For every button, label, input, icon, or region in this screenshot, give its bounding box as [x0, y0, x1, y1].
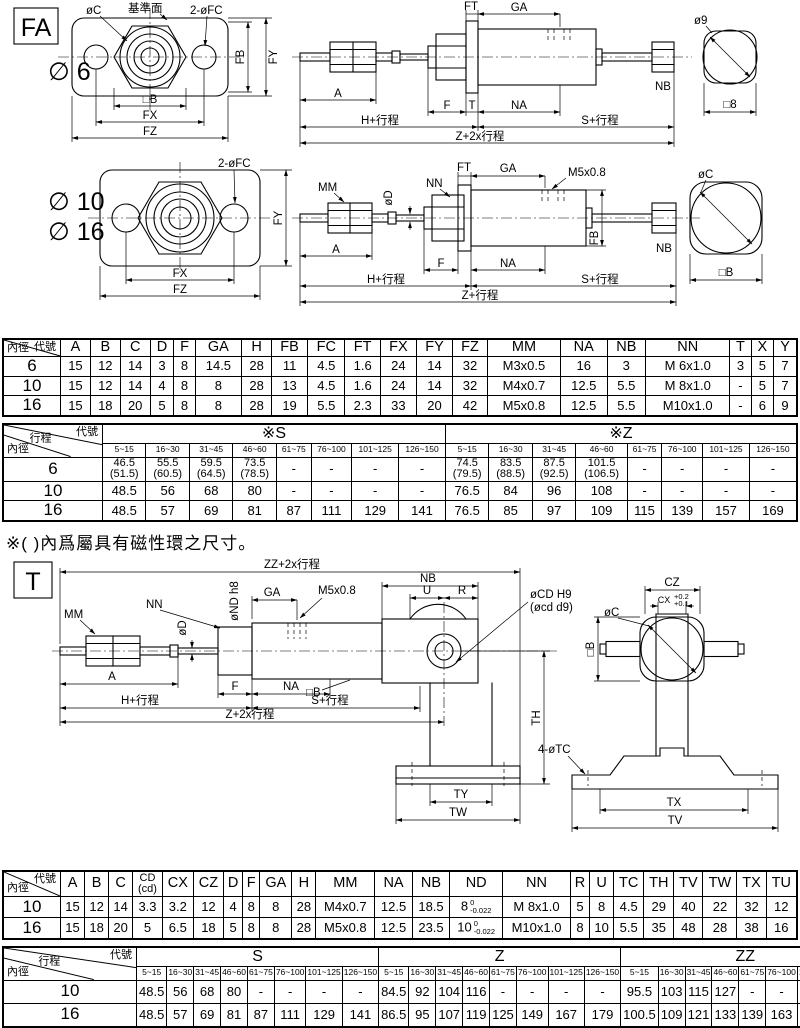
sqb-label: □B — [143, 94, 158, 106]
bore16-label: ∅ 16 — [48, 218, 105, 246]
ocd-label: øCD H9 — [530, 589, 572, 601]
value-cell: 12.5 — [561, 376, 608, 396]
nb-label-t: NB — [420, 573, 436, 585]
value-cell: 85 — [489, 501, 532, 521]
col-header: R — [570, 871, 589, 897]
col-header: MM — [316, 871, 375, 897]
value-cell: M10x1.0 — [646, 396, 730, 416]
range-header: 61~75 — [276, 443, 311, 457]
range-header: 126~150 — [749, 443, 797, 457]
value-cell: M4x0.7 — [316, 897, 375, 918]
value-cell: 14 — [416, 356, 452, 376]
m5-label-t: M5x0.8 — [318, 585, 356, 597]
t-stroke-table: 代號行程內徑SZZZ5~1516~3031~4546~6061~7576~100… — [2, 946, 800, 1028]
col-header: FB — [272, 339, 308, 356]
ft-label: FT — [464, 1, 478, 13]
col-header: FT — [345, 339, 380, 356]
fy-label-2: FY — [273, 210, 285, 225]
value-cell: - — [703, 457, 750, 481]
value-cell: 104 — [436, 980, 463, 1003]
fc-label: 2-øFC — [190, 5, 223, 17]
fa-drawing: FA ∅ 6 øC 基準面 2-øFC FB FY □B FX FZ — [0, 0, 800, 332]
value-cell: 32 — [453, 376, 488, 396]
ga-label-2: GA — [500, 163, 517, 175]
value-cell: 119 — [463, 1003, 490, 1027]
value-cell: 48.5 — [103, 501, 146, 521]
corner-label: 代號 — [110, 950, 132, 961]
fa-tag-label: FA — [21, 14, 52, 42]
value-cell: 108 — [576, 481, 627, 501]
value-cell: 5 — [133, 918, 163, 940]
datum-label: 基準面 — [128, 1, 163, 15]
tc4-label: 4-øTC — [538, 744, 571, 756]
zz-stroke-label: ZZ+2x行程 — [264, 558, 320, 571]
corner-label: 代號 — [34, 342, 56, 353]
value-cell: 12.5 — [375, 918, 412, 940]
value-cell: 1.6 — [345, 356, 380, 376]
value-cell: 15 — [61, 918, 85, 940]
corner-label: 內徑 — [7, 444, 29, 455]
tol-tb: -0.022 — [474, 928, 495, 936]
value-cell: 38 — [737, 918, 766, 940]
col-header: D — [150, 339, 174, 356]
z-stroke-label: Z+行程 — [462, 289, 499, 302]
bore-cell: 6 — [3, 356, 61, 376]
value-cell: - — [766, 980, 798, 1003]
h-stroke-label-t: H+行程 — [121, 694, 160, 707]
col-header: ND — [450, 871, 503, 897]
value-cell: 12.5 — [375, 897, 412, 918]
corner-label: 代號 — [76, 427, 98, 438]
value-cell: 111 — [274, 1003, 306, 1027]
value-cell: 8 — [590, 897, 614, 918]
value-cell: 139 — [662, 501, 703, 521]
value-cell: 76.5 — [445, 501, 488, 521]
bore-cell: 10 — [3, 897, 61, 918]
value-cell: 4.5 — [308, 356, 345, 376]
value-cell: 8 — [174, 376, 195, 396]
value-cell: 20 — [416, 396, 452, 416]
value-cell: 8 — [260, 918, 292, 940]
table-row: 61512143814.528114.51.6241432M3x0.5163M … — [3, 356, 797, 376]
value-cell: 149 — [516, 1003, 548, 1027]
value-cell: 69 — [189, 501, 232, 521]
table-row: 101512143.33.21248828M4x0.712.518.580-0.… — [3, 897, 797, 918]
m5-label: M5x0.8 — [568, 167, 606, 179]
value-cell: 95 — [409, 1003, 436, 1027]
col-header: FZ — [453, 339, 488, 356]
value-cell: 5 — [223, 918, 242, 940]
tw-label: TW — [449, 807, 467, 819]
fc-label-2: 2-øFC — [218, 158, 251, 170]
value-cell: 109 — [658, 1003, 685, 1027]
range-header: 46~60 — [221, 966, 248, 980]
value-cell: M10x1.0 — [503, 918, 571, 940]
value-cell: 101.5 (106.5) — [576, 457, 627, 481]
value-cell: 56 — [146, 481, 189, 501]
range-header: 5~15 — [445, 443, 488, 457]
value-cell: - — [247, 980, 274, 1003]
value-cell: 16 — [561, 356, 608, 376]
range-header: 16~30 — [489, 443, 532, 457]
value-cell: 81 — [221, 1003, 248, 1027]
value-cell: 3 — [150, 356, 174, 376]
value-cell: M 8x1.0 — [503, 897, 571, 918]
value-cell: - — [342, 980, 378, 1003]
fb-label-2: FB — [589, 230, 601, 245]
value-cell: M 6x1.0 — [646, 356, 730, 376]
value-cell: 86.5 — [379, 1003, 409, 1027]
value-cell: - — [306, 980, 342, 1003]
value-cell: 141 — [342, 1003, 378, 1027]
col-header: FX — [380, 339, 416, 356]
value-cell: 28 — [703, 918, 737, 940]
range-header: 61~75 — [739, 966, 766, 980]
value-cell: - — [352, 457, 399, 481]
value-cell: 20 — [120, 396, 150, 416]
value-cell: 48.5 — [137, 1003, 167, 1027]
nn-label: NN — [426, 178, 443, 190]
group-header: ※Z — [445, 424, 797, 443]
col-header: NB — [607, 339, 646, 356]
value-cell: 6.5 — [162, 918, 193, 940]
value-cell: 8 — [195, 376, 242, 396]
range-header: 76~100 — [311, 443, 352, 457]
value-cell: 87 — [276, 501, 311, 521]
group-header: S — [137, 947, 379, 966]
sqb-label-t2: □B — [585, 641, 597, 656]
f-label: F — [443, 100, 450, 112]
range-header: 61~75 — [490, 966, 517, 980]
tol-main: 10 — [457, 920, 471, 935]
value-cell: 4.5 — [614, 897, 644, 918]
range-header: 31~45 — [685, 966, 712, 980]
col-header: F — [174, 339, 195, 356]
value-cell: 103 — [658, 980, 685, 1003]
corner-cell: 代號內徑 — [3, 871, 61, 897]
value-cell: 24 — [380, 356, 416, 376]
table-row: 1615182058828195.52.3332042M5x0.812.55.5… — [3, 396, 797, 416]
value-cell: 57 — [167, 1003, 194, 1027]
col-header: A — [61, 871, 85, 897]
value-cell: - — [627, 481, 662, 501]
value-cell: 115 — [685, 980, 712, 1003]
value-cell: 14 — [109, 897, 133, 918]
group-header: ※S — [103, 424, 446, 443]
col-header: TU — [766, 871, 797, 897]
range-header: 5~15 — [379, 966, 409, 980]
value-cell: - — [703, 481, 750, 501]
value-cell: 48.5 — [103, 481, 146, 501]
value-cell: 48.5 — [137, 980, 167, 1003]
value-cell: 14 — [120, 376, 150, 396]
value-cell: 3 — [730, 356, 751, 376]
value-cell: 14 — [416, 376, 452, 396]
col-header: NA — [375, 871, 412, 897]
value-cell: - — [749, 481, 797, 501]
col-header: A — [61, 339, 91, 356]
range-header: 76~100 — [766, 966, 798, 980]
range-header: 5~15 — [137, 966, 167, 980]
value-cell: 40 — [674, 897, 703, 918]
value-cell: 28 — [292, 918, 316, 940]
value-cell: 18 — [90, 396, 120, 416]
value-cell: 107 — [436, 1003, 463, 1027]
value-cell: 59.5 (64.5) — [189, 457, 232, 481]
col-header: D — [223, 871, 242, 897]
value-cell: 179 — [584, 1003, 620, 1027]
value-cell: 18 — [85, 918, 109, 940]
value-cell: 4 — [150, 376, 174, 396]
value-cell: 74.5 (79.5) — [445, 457, 488, 481]
value-cell: 129 — [306, 1003, 342, 1027]
value-cell: M3x0.5 — [487, 356, 560, 376]
value-cell: 7 — [774, 376, 797, 396]
value-cell: 18.5 — [412, 897, 449, 918]
value-cell: M5x0.8 — [316, 918, 375, 940]
tol-main: 8 — [461, 899, 468, 914]
value-cell: 84 — [489, 481, 532, 501]
value-cell: - — [352, 481, 399, 501]
value-cell: 68 — [194, 980, 221, 1003]
value-cell: 111 — [311, 501, 352, 521]
value-cell: 3.2 — [162, 897, 193, 918]
a-label-t: A — [108, 671, 116, 683]
value-cell: 3.3 — [133, 897, 163, 918]
value-cell: 139 — [739, 1003, 766, 1027]
range-header: 31~45 — [532, 443, 575, 457]
f-label-2: F — [437, 258, 444, 270]
range-header: 61~75 — [627, 443, 662, 457]
value-cell: - — [627, 457, 662, 481]
value-cell: 15 — [61, 356, 91, 376]
h-stroke-label-2: H+行程 — [367, 273, 406, 286]
bore10-label: ∅ 10 — [48, 188, 105, 216]
value-cell: 5 — [751, 356, 774, 376]
col-header: Y — [774, 339, 797, 356]
value-cell: 8 — [195, 396, 242, 416]
r-label: R — [458, 585, 466, 597]
value-cell: - — [399, 457, 446, 481]
col-header: MM — [487, 339, 560, 356]
bore-cell: 10 — [3, 481, 103, 501]
value-cell: 1.6 — [345, 376, 380, 396]
value-cell: 81 — [233, 501, 276, 521]
value-cell: - — [490, 980, 517, 1003]
bore-cell: 16 — [3, 501, 103, 521]
value-cell: 42 — [453, 396, 488, 416]
value-cell: 6 — [751, 396, 774, 416]
cx-tol-bot: +0.1 — [674, 599, 689, 608]
group-header: Z — [379, 947, 621, 966]
range-header: 16~30 — [167, 966, 194, 980]
table-row: 646.5 (51.5)55.5 (60.5)59.5 (64.5)73.5 (… — [3, 457, 797, 481]
value-cell: - — [276, 457, 311, 481]
na-label-t: NA — [283, 681, 299, 693]
value-cell: 5 — [150, 396, 174, 416]
value-cell: 68 — [189, 481, 232, 501]
range-header: 61~75 — [247, 966, 274, 980]
value-cell: 141 — [399, 501, 446, 521]
corner-label: 代號 — [34, 874, 56, 885]
z2-stroke-label-t: Z+2x行程 — [226, 708, 275, 721]
col-header: TC — [614, 871, 644, 897]
value-cell: 32 — [737, 897, 766, 918]
value-cell: - — [662, 457, 703, 481]
value-cell: 76.5 — [445, 481, 488, 501]
corner-cell: 代號內徑 — [3, 339, 61, 356]
range-header: 46~60 — [712, 966, 739, 980]
value-cell: M 8x1.0 — [646, 376, 730, 396]
oc-label-2: øC — [698, 169, 713, 181]
value-cell: 133 — [712, 1003, 739, 1027]
value-cell: 95.5 — [621, 980, 659, 1003]
s-stroke-label-2: S+行程 — [581, 273, 619, 286]
value-cell: 12 — [85, 897, 109, 918]
fx-label-2: FX — [173, 268, 188, 280]
value-cell: - — [274, 980, 306, 1003]
fb-label: FB — [235, 49, 247, 64]
value-cell: 169 — [749, 501, 797, 521]
range-header: 126~150 — [342, 966, 378, 980]
range-header: 101~125 — [306, 966, 342, 980]
value-cell: 80-0.022 — [450, 897, 503, 918]
tx-label: TX — [667, 797, 682, 809]
value-cell: 10 — [590, 918, 614, 940]
value-cell: 5 — [751, 376, 774, 396]
col-header: B — [90, 339, 120, 356]
ga-label-t: GA — [264, 587, 281, 599]
value-cell: 87.5 (92.5) — [532, 457, 575, 481]
col-header: CZ — [193, 871, 223, 897]
col-header: CD (cd) — [133, 871, 163, 897]
col-header: TV — [674, 871, 703, 897]
value-cell: 12.5 — [561, 396, 608, 416]
value-cell: 129 — [352, 501, 399, 521]
na-label: NA — [511, 100, 527, 112]
table-row: 1648.55769818711112914176.58597109115139… — [3, 501, 797, 521]
range-header: 101~125 — [352, 443, 399, 457]
value-cell: M4x0.7 — [487, 376, 560, 396]
range-header: 31~45 — [194, 966, 221, 980]
na-label-2: NA — [500, 258, 516, 270]
col-header: NN — [503, 871, 571, 897]
value-cell: 24 — [380, 376, 416, 396]
value-cell: 18 — [193, 918, 223, 940]
bore-cell: 16 — [3, 1003, 137, 1027]
col-header: FC — [308, 339, 345, 356]
value-cell: 20 — [109, 918, 133, 940]
col-header: NB — [412, 871, 449, 897]
value-cell: 115 — [627, 501, 662, 521]
bore-cell: 10 — [3, 980, 137, 1003]
value-cell: 12 — [90, 376, 120, 396]
f-label-t: F — [231, 681, 238, 693]
value-cell: 8 — [570, 918, 589, 940]
t-dimension-table: 代號內徑ABCCD (cd)CXCZDFGAHMMNANBNDNNRUTCTHT… — [2, 870, 798, 940]
value-cell: 22 — [703, 897, 737, 918]
range-header: 76~100 — [662, 443, 703, 457]
corner-label: 內徑 — [7, 343, 29, 354]
table-row: 1015121448828134.51.6241432M4x0.712.55.5… — [3, 376, 797, 396]
col-header: GA — [260, 871, 292, 897]
range-header: 46~60 — [463, 966, 490, 980]
bore-cell: 16 — [3, 918, 61, 940]
value-cell: 4 — [223, 897, 242, 918]
range-header: 5~15 — [621, 966, 659, 980]
tv-label: TV — [668, 815, 683, 827]
oc-label: øC — [86, 5, 101, 17]
value-cell: 12 — [90, 356, 120, 376]
table-row: 1648.55769818711112914186.59510711912514… — [3, 1003, 800, 1027]
value-cell: 8 — [260, 897, 292, 918]
value-cell: - — [311, 481, 352, 501]
table-row: 1048.5566880----84.592104116----95.51031… — [3, 980, 800, 1003]
value-cell: 28 — [292, 897, 316, 918]
value-cell: 121 — [685, 1003, 712, 1027]
range-header: 5~15 — [103, 443, 146, 457]
fx-label: FX — [143, 110, 158, 122]
value-cell: 157 — [703, 501, 750, 521]
value-cell: 167 — [548, 1003, 584, 1027]
value-cell: - — [662, 481, 703, 501]
nn-label-t: NN — [146, 599, 163, 611]
value-cell: 48 — [674, 918, 703, 940]
value-cell: 7 — [774, 356, 797, 376]
value-cell: 5 — [570, 897, 589, 918]
value-cell: - — [584, 980, 620, 1003]
col-header: H — [242, 339, 272, 356]
corner-label: 內徑 — [7, 883, 29, 894]
value-cell: 57 — [146, 501, 189, 521]
a-label: A — [334, 88, 342, 100]
value-cell: 83.5 (88.5) — [489, 457, 532, 481]
od-label-t: øD — [177, 620, 189, 635]
h-stroke-label: H+行程 — [361, 114, 400, 127]
fy-label: FY — [268, 49, 280, 64]
range-header: 76~100 — [516, 966, 548, 980]
col-header: C — [120, 339, 150, 356]
u-label: U — [423, 585, 431, 597]
value-cell: 8 — [243, 918, 260, 940]
value-cell: 96 — [532, 481, 575, 501]
corner-cell: 代號行程內徑 — [3, 424, 103, 457]
nb-label: NB — [655, 81, 671, 93]
o9-label: ø9 — [694, 15, 707, 27]
corner-label: 行程 — [29, 434, 51, 445]
col-header: X — [751, 339, 774, 356]
range-header: 16~30 — [658, 966, 685, 980]
value-cell: - — [548, 980, 584, 1003]
a-label-2: A — [332, 244, 340, 256]
th-label: TH — [531, 710, 543, 725]
value-cell: - — [739, 980, 766, 1003]
range-header: 31~45 — [436, 966, 463, 980]
corner-label: 行程 — [38, 957, 60, 968]
corner-label: 內徑 — [7, 967, 29, 978]
bore-cell: 10 — [3, 376, 61, 396]
fz-label: FZ — [143, 126, 157, 138]
value-cell: 116 — [463, 980, 490, 1003]
value-cell: - — [276, 481, 311, 501]
range-header: 126~150 — [399, 443, 446, 457]
corner-cell: 代號行程內徑 — [3, 947, 137, 980]
fa-dimension-table: 代號內徑ABCDFGAHFBFCFTFXFYFZMMNANBNNTXY61512… — [2, 338, 798, 417]
col-header: TX — [737, 871, 766, 897]
range-header: 31~45 — [189, 443, 232, 457]
value-cell: 80 — [221, 980, 248, 1003]
ond-label: øND h8 — [229, 581, 241, 621]
